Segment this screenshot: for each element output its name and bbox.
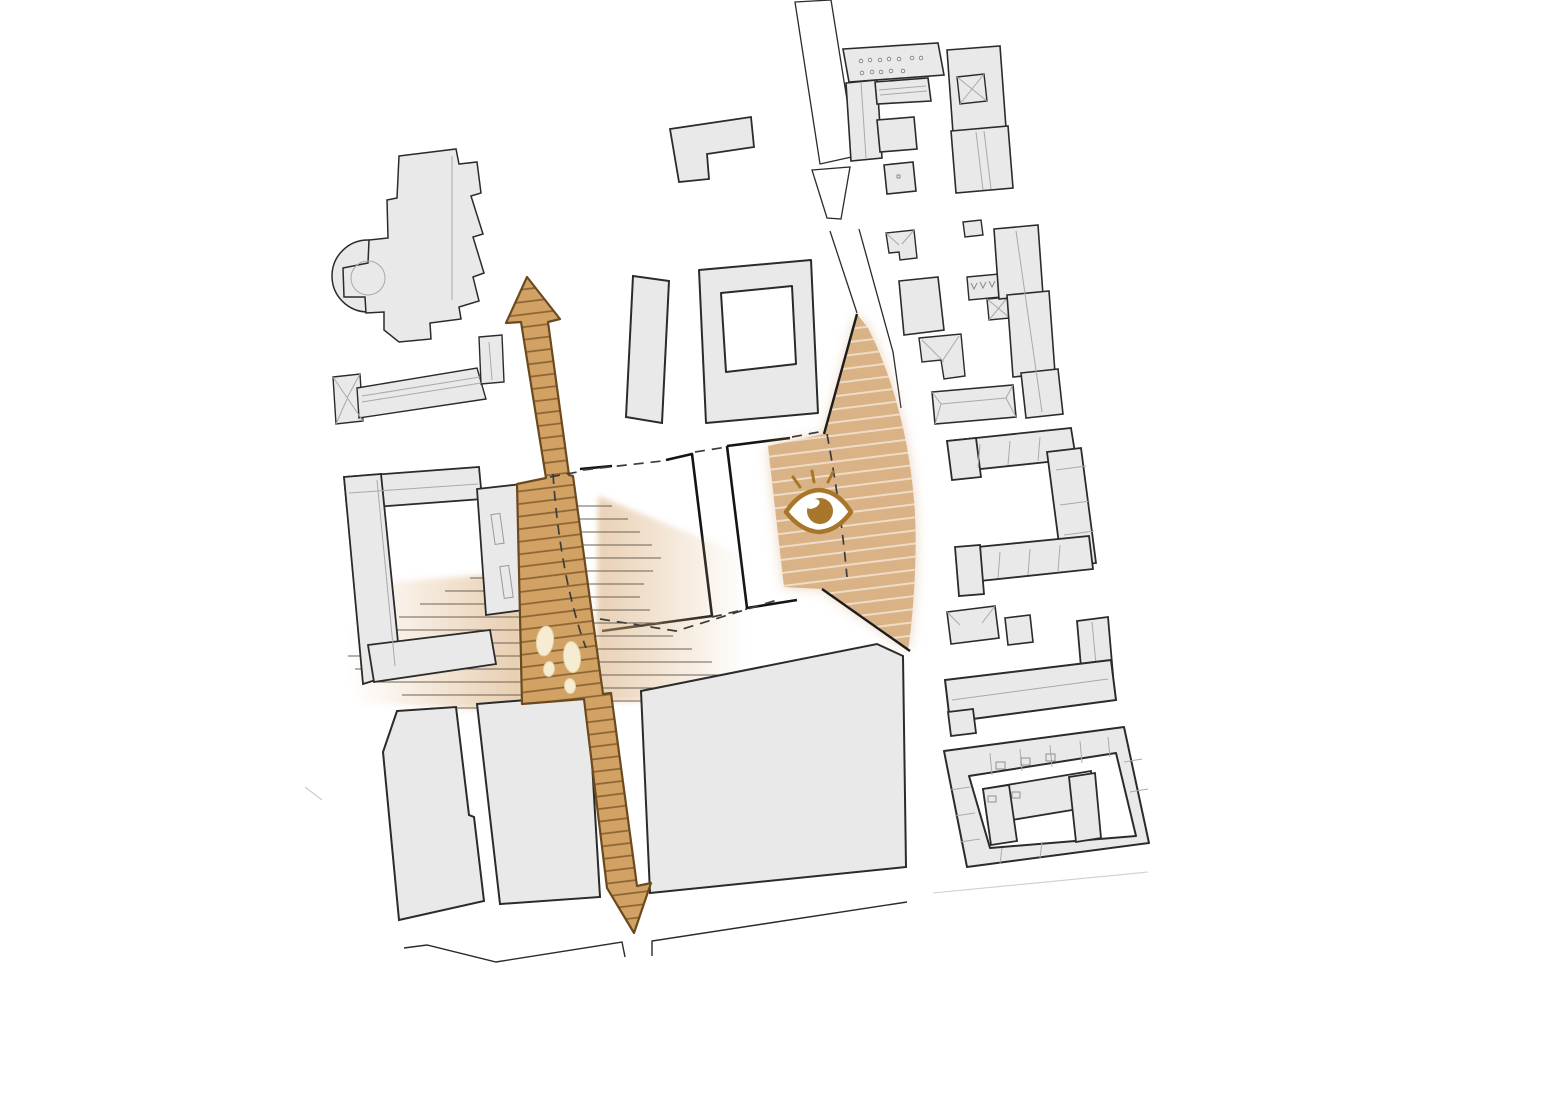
street-edge-faint [933,872,1148,893]
site-plan-page [0,0,1556,1100]
small-building [1005,615,1033,645]
perimeter-block-wing [955,545,984,596]
eye-lash-stroke [812,471,814,482]
dormer-mark [870,70,874,74]
dormer-mark [859,59,863,63]
dormer-mark [860,71,864,75]
perimeter-block-wing [947,438,981,480]
dormer-mark [878,58,882,62]
inner-u-building [1069,773,1101,842]
dormer-mark [879,70,883,74]
dormer-mark [901,69,905,73]
street-edge [404,942,625,962]
dormer-mark [887,57,891,61]
street-segment [795,0,856,164]
street-edge [652,902,907,956]
street-segment [812,167,850,219]
street-edge [830,231,857,313]
block-head [948,709,976,736]
dormer-mark [889,69,893,73]
dormer-mark [868,58,872,62]
long-building [932,385,1016,424]
boundary-dash [695,447,727,452]
small-building [919,334,965,379]
building-footprint [626,276,669,423]
slab-building [994,225,1043,299]
hatch-smear-east [596,496,745,702]
f-shaped-building-bar [877,117,917,152]
courtyard-block [699,260,818,423]
sketch-mark [305,787,322,800]
city-block [477,695,600,904]
site-plan-canvas [0,0,1556,1100]
city-block [383,707,484,920]
dormer-mark [910,56,914,60]
small-building [963,220,983,237]
building-with-dormers [843,43,944,82]
l-shaped-building [670,117,754,182]
building-footprint [899,277,944,335]
dormer-mark [919,56,923,60]
dormer-mark [897,57,901,61]
small-building [886,230,917,260]
